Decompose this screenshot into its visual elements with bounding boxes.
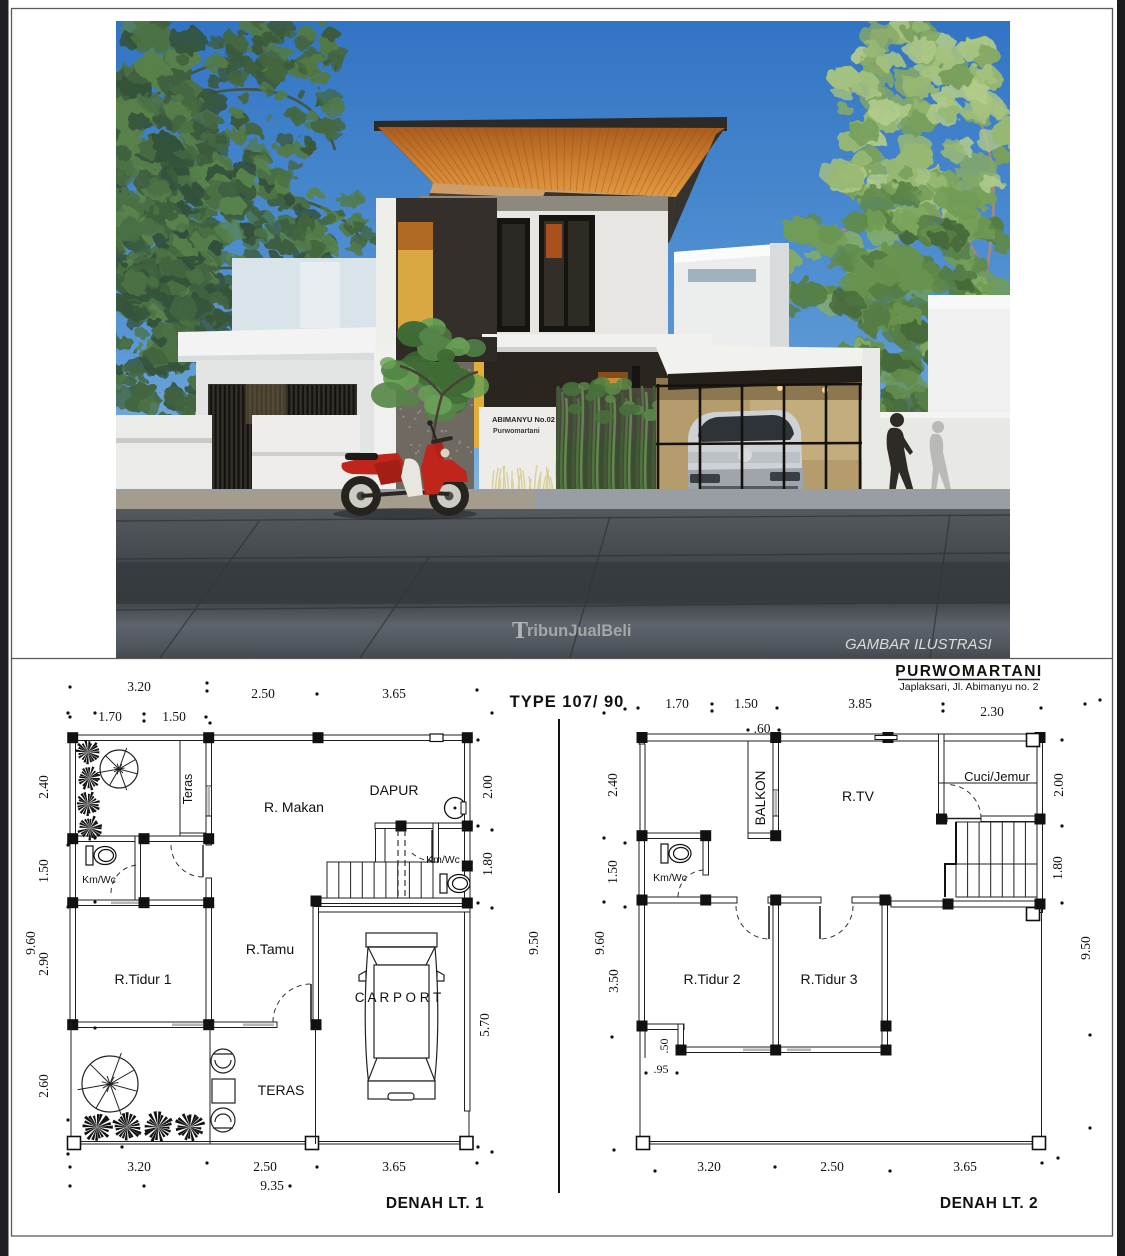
svg-text:Km/Wc: Km/Wc <box>426 854 460 866</box>
svg-text:R.Tidur 2: R.Tidur 2 <box>683 971 740 987</box>
svg-text:3.20: 3.20 <box>697 1159 721 1174</box>
svg-text:9.50: 9.50 <box>526 931 541 955</box>
svg-text:1.50: 1.50 <box>36 859 51 883</box>
svg-text:3.65: 3.65 <box>382 686 406 701</box>
svg-text:Purwomartani: Purwomartani <box>493 428 540 435</box>
svg-text:9.60: 9.60 <box>592 931 607 955</box>
svg-text:.60: .60 <box>754 721 771 736</box>
svg-text:T: T <box>512 618 528 644</box>
svg-text:Km/Wc: Km/Wc <box>82 874 116 886</box>
svg-text:2.50: 2.50 <box>253 1159 277 1174</box>
svg-text:TYPE 107/ 90: TYPE 107/ 90 <box>510 693 625 711</box>
svg-text:GAMBAR ILUSTRASI: GAMBAR ILUSTRASI <box>845 636 992 653</box>
svg-text:2.50: 2.50 <box>251 686 275 701</box>
svg-text:2.90: 2.90 <box>36 952 51 976</box>
svg-text:2.50: 2.50 <box>820 1159 844 1174</box>
svg-text:1.50: 1.50 <box>162 709 186 724</box>
svg-text:3.20: 3.20 <box>127 679 151 694</box>
svg-text:1.80: 1.80 <box>1050 856 1065 880</box>
svg-text:1.80: 1.80 <box>480 852 495 876</box>
svg-text:ribunJualBeli: ribunJualBeli <box>527 622 632 640</box>
svg-text:Cuci/Jemur: Cuci/Jemur <box>964 769 1030 784</box>
svg-text:BALKON: BALKON <box>753 771 768 826</box>
svg-text:DAPUR: DAPUR <box>369 782 418 798</box>
svg-text:.95: .95 <box>654 1062 669 1076</box>
svg-text:R.TV: R.TV <box>842 788 875 804</box>
svg-text:2.00: 2.00 <box>480 775 495 799</box>
svg-text:C A R P O R T: C A R P O R T <box>355 990 442 1005</box>
svg-text:.50: .50 <box>657 1039 671 1054</box>
svg-text:2.60: 2.60 <box>36 1074 51 1098</box>
svg-text:9.35: 9.35 <box>260 1178 284 1193</box>
svg-text:TERAS: TERAS <box>258 1082 305 1098</box>
svg-text:2.40: 2.40 <box>605 773 620 797</box>
svg-text:1.70: 1.70 <box>98 709 122 724</box>
svg-text:PURWOMARTANI: PURWOMARTANI <box>895 663 1042 680</box>
svg-text:DENAH LT. 2: DENAH LT. 2 <box>940 1195 1038 1212</box>
svg-text:2.40: 2.40 <box>36 775 51 799</box>
svg-text:2.30: 2.30 <box>980 704 1004 719</box>
svg-text:DENAH LT. 1: DENAH LT. 1 <box>386 1195 484 1212</box>
svg-text:5.70: 5.70 <box>477 1013 492 1037</box>
svg-text:3.50: 3.50 <box>606 969 621 993</box>
svg-text:3.65: 3.65 <box>953 1159 977 1174</box>
svg-text:Km/Wc: Km/Wc <box>653 872 687 884</box>
svg-text:1.50: 1.50 <box>605 860 620 884</box>
svg-text:1.70: 1.70 <box>665 696 689 711</box>
svg-text:Teras: Teras <box>181 774 195 805</box>
svg-text:1.50: 1.50 <box>734 696 758 711</box>
svg-text:3.85: 3.85 <box>848 696 872 711</box>
svg-text:2.00: 2.00 <box>1051 773 1066 797</box>
svg-text:9.50: 9.50 <box>1078 936 1093 960</box>
svg-text:R.Tamu: R.Tamu <box>246 941 294 957</box>
svg-text:R. Makan: R. Makan <box>264 799 324 815</box>
svg-text:3.20: 3.20 <box>127 1159 151 1174</box>
svg-text:3.65: 3.65 <box>382 1159 406 1174</box>
svg-text:R.Tidur 3: R.Tidur 3 <box>800 971 857 987</box>
svg-text:ABIMANYU No.02: ABIMANYU No.02 <box>492 415 555 424</box>
svg-text:9.60: 9.60 <box>23 931 38 955</box>
svg-text:Japlaksari, Jl. Abimanyu no. 2: Japlaksari, Jl. Abimanyu no. 2 <box>900 681 1039 693</box>
svg-text:R.Tidur 1: R.Tidur 1 <box>114 971 171 987</box>
